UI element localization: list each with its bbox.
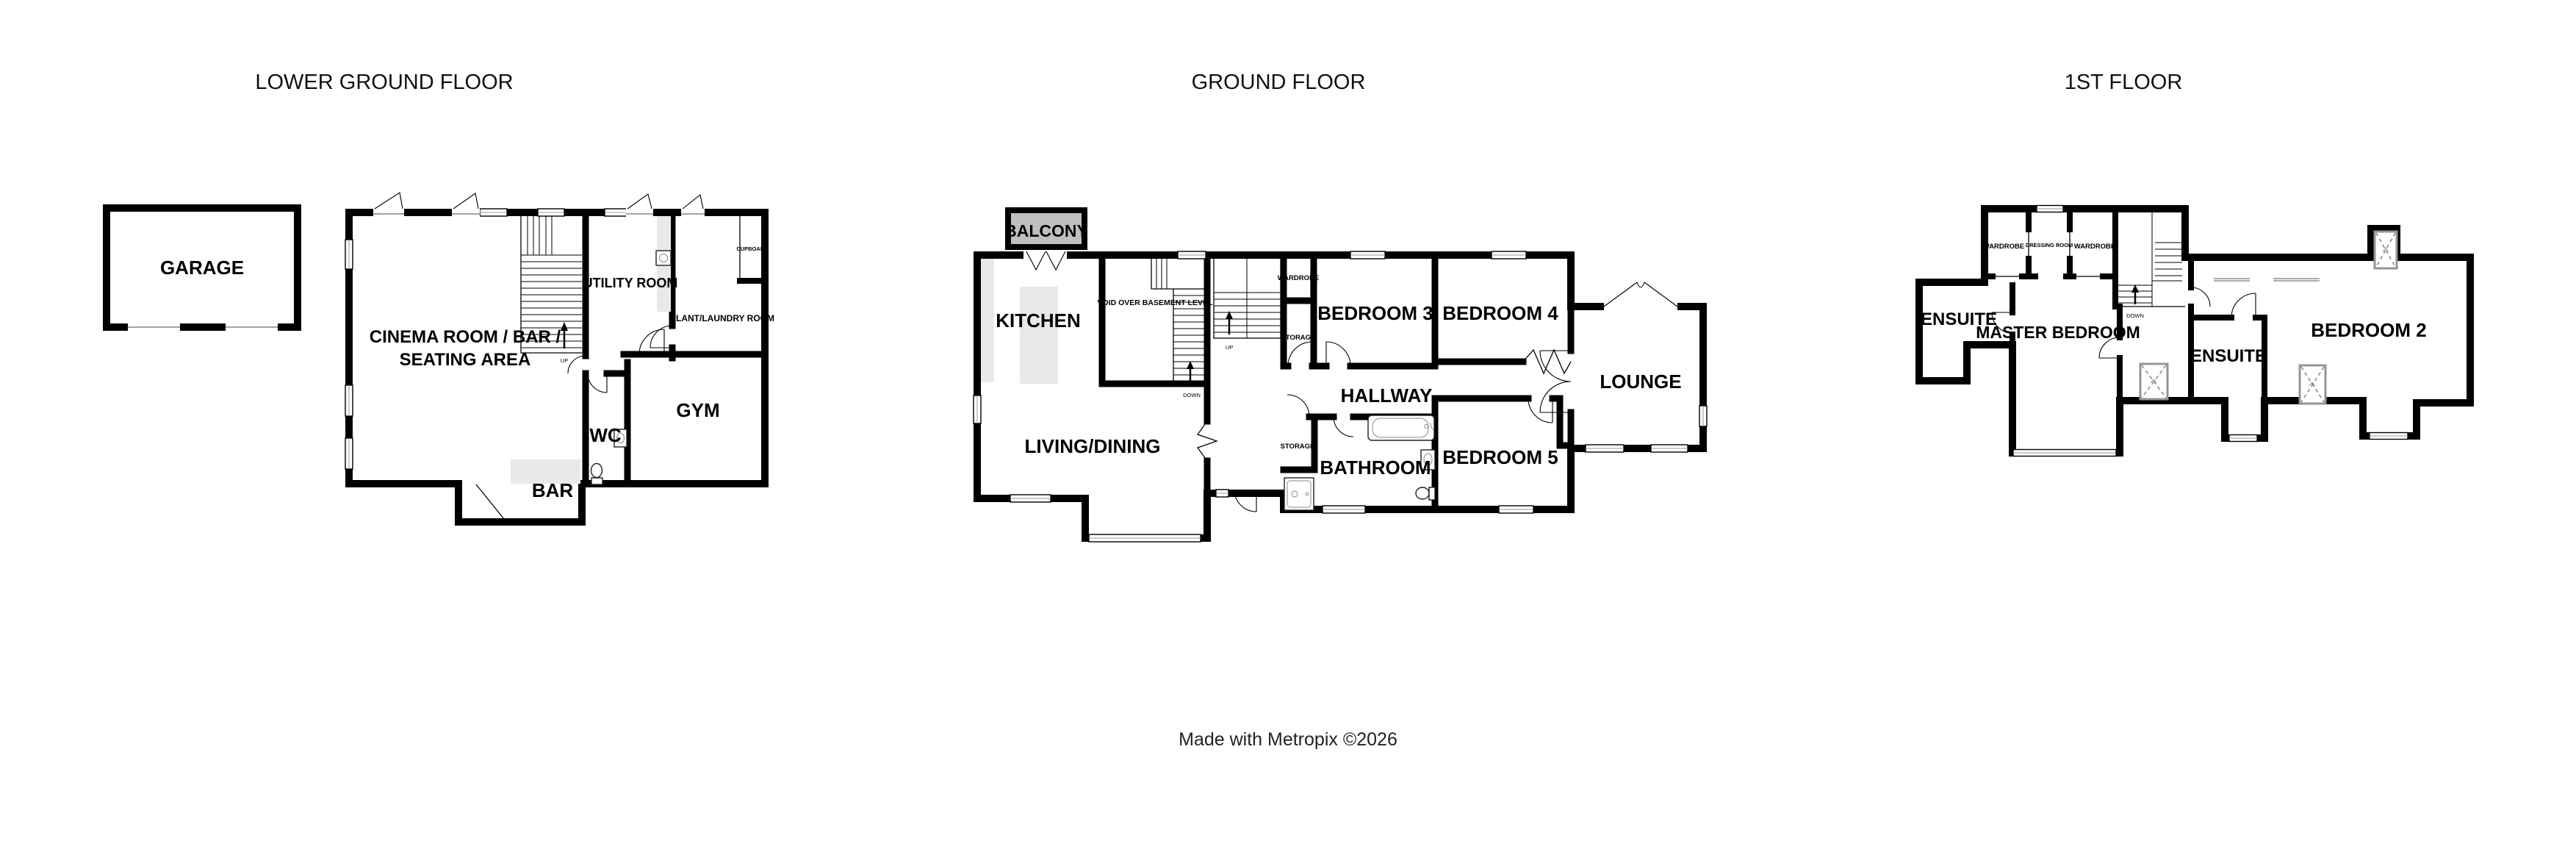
window [1350,251,1385,259]
wardrobe-storage-walls [1284,255,1314,366]
lower-ground-building: UP CINEMA ROOM / BAR / SEATING AREA [345,193,774,523]
garage-room: GARAGE [107,208,298,332]
room-label-storage-lower: STORAGE [1281,443,1315,451]
window [1586,445,1624,452]
washer-icon [656,251,671,265]
door-arc [1540,351,1571,382]
room-label-wardrobe-left: WARDROBE [1983,243,2024,251]
staircase-down: DOWN [1151,255,1207,398]
floorplan-page: LOWER GROUND FLOOR GARAGE [0,0,2576,852]
door-arc [1288,342,1312,366]
first-floor-building: DOWN WARDROBE DRESSING ROOM WARDROBE [1919,206,2470,457]
shower-icon [1284,478,1314,510]
window [1178,251,1206,259]
credit-text: Made with Metropix ©2026 [1179,729,1397,750]
balcony: BALCONY [1004,210,1088,247]
door-opening [681,195,705,217]
stair-arrow-head [2131,284,2139,293]
room-label-bedroom4: BEDROOM 4 [1442,302,1558,324]
toilet-icon [591,464,603,485]
stair-label-down: DOWN [1183,392,1201,398]
window [345,240,353,269]
room-label-ensuite2: ENSUITE [2190,346,2267,366]
room-label-balcony: BALCONY [1004,221,1088,240]
window [2037,206,2063,212]
room-label-wc: WC [589,424,622,446]
window [1699,406,1707,426]
room-label-hallway: HALLWAY [1341,384,1433,407]
void-walls [1102,255,1207,493]
french-doors [1604,282,1677,311]
room-label-living-dining: LIVING/DINING [1025,435,1161,457]
floor-title-lower-ground: LOWER GROUND FLOOR [255,71,513,94]
stair-label-down: DOWN [2126,312,2144,319]
door-opening [452,193,480,217]
room-label-bathroom: BATHROOM [1320,457,1431,479]
window [1216,490,1228,497]
room-label-lounge: LOUNGE [1600,370,1681,393]
floor-plan-lower-ground: LOWER GROUND FLOOR GARAGE [107,71,774,523]
door-arc [1326,342,1350,366]
room-label-garage: GARAGE [160,257,244,279]
floor-title-first: 1ST FLOOR [2065,71,2183,94]
room-label-bedroom5: BEDROOM 5 [1442,446,1558,468]
window [538,209,564,216]
window [345,438,353,469]
staircase-up: UP [1214,255,1281,351]
door-arc [639,329,664,354]
window [345,385,353,416]
window [1499,506,1533,513]
floor-title-ground: GROUND FLOOR [1192,71,1366,94]
window [2013,450,2116,457]
rooflight-icon [2140,364,2167,399]
room-label-cupboard: CUPBOARD [736,246,769,252]
room-label-kitchen: KITCHEN [996,309,1081,332]
floorplan-image: LOWER GROUND FLOOR GARAGE [0,0,2576,852]
room-label-storage-upper: STORAGE [1281,334,1316,342]
room-label-bedroom2: BEDROOM 2 [2311,319,2426,341]
stair-label-up: UP [561,357,568,364]
door-leaf [476,484,507,523]
stair-arrow-head [1187,361,1194,369]
eaves-line [2214,279,2320,281]
kitchen-island [1020,287,1058,384]
window [1323,506,1365,513]
ground-building: DOWN UP [974,251,1707,542]
window [480,209,507,216]
room-label-dressing-room: DRESSING ROOM [2026,242,2073,248]
room-label-plant-laundry: PLANT/LAUNDRY ROOM [670,313,774,323]
door-arc [2231,293,2256,318]
open-wall-symbol [1198,421,1217,461]
stair-arrow-head [561,322,568,331]
kitchen-counter [981,259,994,382]
window [1492,251,1526,259]
room-label-cinema-line1: CINEMA ROOM / BAR / [370,327,561,347]
toilet-icon [1416,487,1435,500]
room-label-wardrobe: WARDROBE [1278,274,1319,282]
floor-plan-first: 1ST FLOOR [1919,71,2470,457]
rooflight-icon [2375,232,2397,268]
room-label-utility: UTILITY ROOM [583,276,678,290]
staircase-first-floor: DOWN [2118,212,2185,319]
window [1010,495,1051,502]
room-label-wardrobe-right: WARDROBE [2074,243,2115,251]
bath-icon [1368,415,1434,440]
french-doors [1023,251,1067,270]
door-opening [373,193,404,217]
room-label-bedroom3: BEDROOM 3 [1317,302,1433,324]
window [605,209,627,216]
window [2229,435,2257,442]
window [2370,433,2408,440]
room-label-gym: GYM [676,399,719,421]
window [1089,534,1201,542]
stair-label-up: UP [1226,344,1233,351]
window [974,395,981,423]
room-label-master-bedroom: MASTER BEDROOM [1976,323,2140,342]
floor-plan-ground: GROUND FLOOR BALCONY [974,71,1707,542]
door-opening [626,194,653,217]
room-label-bar: BAR [532,479,574,501]
rooflight-icon [2300,365,2325,404]
room-label-void: VOID OVER BASEMENT LEVEL [1098,298,1214,307]
room-label-cinema-line2: SEATING AREA [400,350,531,370]
window [1651,445,1688,452]
